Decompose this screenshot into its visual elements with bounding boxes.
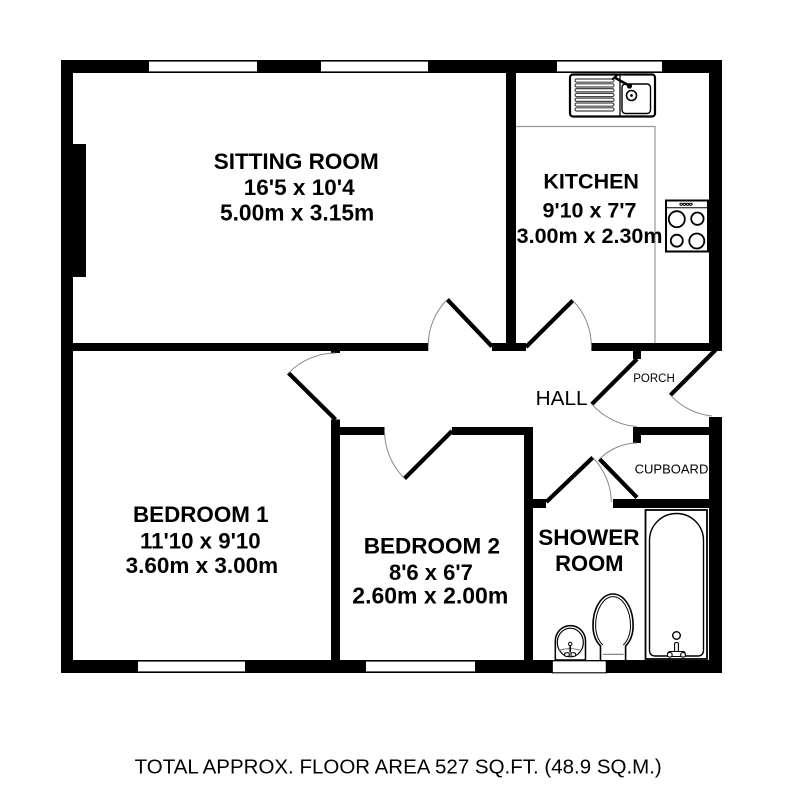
svg-text:16'5 x 10'4: 16'5 x 10'4 [244, 175, 355, 200]
svg-text:ROOM: ROOM [555, 551, 623, 576]
svg-text:2.60m x 2.00m: 2.60m x 2.00m [352, 583, 508, 609]
svg-text:3.00m x 2.30m: 3.00m x 2.30m [517, 224, 663, 248]
svg-text:11'10 x 9'10: 11'10 x 9'10 [140, 529, 261, 554]
svg-text:BEDROOM 2: BEDROOM 2 [364, 534, 500, 559]
svg-text:8'6 x 6'7: 8'6 x 6'7 [389, 560, 473, 585]
svg-text:CUPBOARD: CUPBOARD [635, 462, 709, 477]
svg-text:9'10 x 7'7: 9'10 x 7'7 [543, 199, 637, 223]
svg-text:KITCHEN: KITCHEN [543, 170, 639, 194]
svg-text:5.00m x 3.15m: 5.00m x 3.15m [220, 200, 374, 226]
svg-text:SITTING ROOM: SITTING ROOM [214, 149, 379, 174]
svg-text:HALL: HALL [536, 387, 588, 410]
svg-text:SHOWER: SHOWER [538, 525, 639, 550]
svg-text:TOTAL APPROX. FLOOR AREA 527 S: TOTAL APPROX. FLOOR AREA 527 SQ.FT. (48.… [135, 756, 662, 779]
svg-text:BEDROOM 1: BEDROOM 1 [133, 502, 269, 527]
svg-text:3.60m x 3.00m: 3.60m x 3.00m [126, 553, 279, 578]
svg-text:PORCH: PORCH [633, 373, 675, 385]
